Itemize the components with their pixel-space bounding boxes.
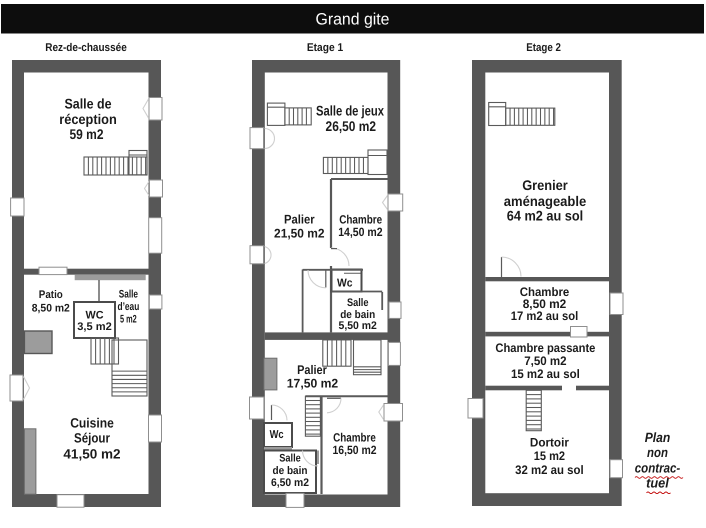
svg-text:aménageable: aménageable <box>504 193 587 209</box>
svg-text:17,50 m2: 17,50 m2 <box>287 377 338 391</box>
svg-text:Salle: Salle <box>279 452 301 464</box>
svg-text:26,50 m2: 26,50 m2 <box>326 118 377 134</box>
svg-text:7,50 m2: 7,50 m2 <box>524 354 567 368</box>
svg-text:Chambre passante: Chambre passante <box>495 341 595 355</box>
svg-text:14,50 m2: 14,50 m2 <box>338 225 383 239</box>
svg-text:64 m2 au sol: 64 m2 au sol <box>507 208 583 224</box>
svg-text:Etage 1: Etage 1 <box>307 42 343 54</box>
svg-text:Grand gite: Grand gite <box>316 11 390 29</box>
svg-text:5,50 m2: 5,50 m2 <box>339 320 377 332</box>
svg-text:WC: WC <box>86 310 104 322</box>
svg-text:Patio: Patio <box>39 289 63 301</box>
svg-text:17 m2 au sol: 17 m2 au sol <box>511 309 579 323</box>
svg-text:15 m2: 15 m2 <box>534 449 565 463</box>
svg-text:Dortoir: Dortoir <box>530 435 569 449</box>
svg-text:16,50 m2: 16,50 m2 <box>333 443 377 457</box>
svg-text:21,50 m2: 21,50 m2 <box>274 227 325 241</box>
svg-text:3,5 m2: 3,5 m2 <box>77 321 112 333</box>
svg-text:Salle de jeux: Salle de jeux <box>316 103 384 119</box>
svg-text:Séjour: Séjour <box>74 431 111 446</box>
svg-text:Salle de: Salle de <box>65 95 112 111</box>
svg-text:Wc: Wc <box>270 429 284 441</box>
svg-text:8,50 m2: 8,50 m2 <box>32 303 70 315</box>
svg-text:d’eau: d’eau <box>118 301 140 313</box>
svg-text:15 m2 au sol: 15 m2 au sol <box>511 367 580 381</box>
svg-text:contrac-: contrac- <box>635 460 681 475</box>
svg-text:Palier: Palier <box>297 363 327 377</box>
svg-text:Grenier: Grenier <box>522 177 568 193</box>
svg-text:32 m2 au sol: 32 m2 au sol <box>515 463 584 477</box>
svg-text:Salle: Salle <box>347 297 369 309</box>
svg-text:Etage 2: Etage 2 <box>526 42 561 54</box>
svg-text:59 m2: 59 m2 <box>70 126 104 142</box>
svg-text:non: non <box>647 445 668 460</box>
svg-text:Salle: Salle <box>119 289 138 301</box>
svg-text:Rez-de-chaussée: Rez-de-chaussée <box>45 42 127 54</box>
svg-text:Palier: Palier <box>284 213 315 227</box>
svg-text:41,50 m2: 41,50 m2 <box>63 447 120 462</box>
svg-text:Plan: Plan <box>645 430 671 445</box>
svg-text:Cuisine: Cuisine <box>70 416 114 431</box>
svg-text:réception: réception <box>59 111 117 127</box>
svg-text:6,50 m2: 6,50 m2 <box>271 477 309 489</box>
svg-text:5 m2: 5 m2 <box>120 314 137 326</box>
svg-text:de bain: de bain <box>273 465 308 477</box>
svg-text:Wc: Wc <box>337 278 353 290</box>
